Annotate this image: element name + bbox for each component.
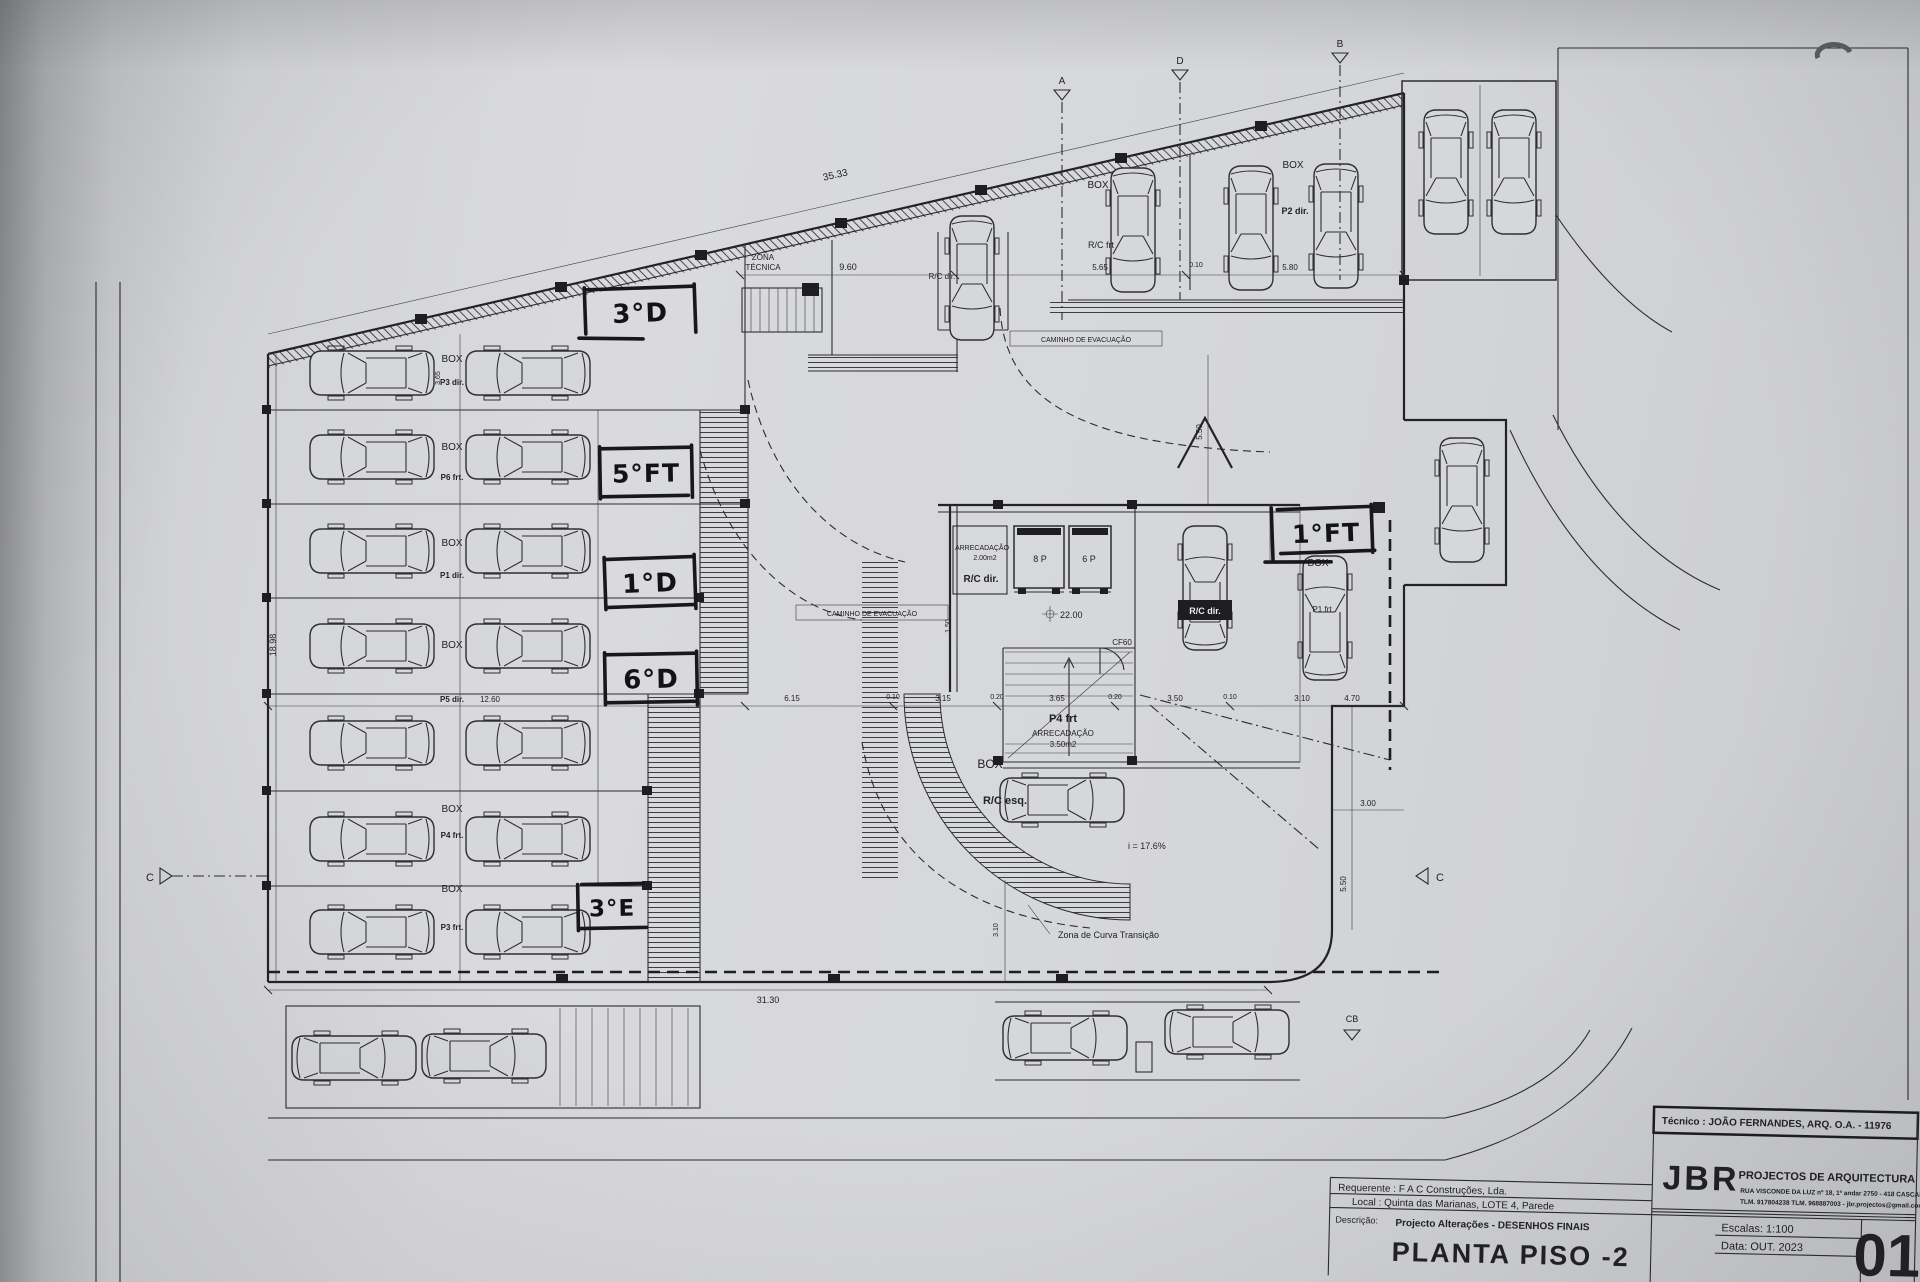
car-icon (310, 346, 434, 400)
handwritten-3e: 3°E (589, 896, 636, 923)
car-icon (310, 524, 434, 578)
car-icon (466, 905, 590, 959)
dim-18-98: 18.98 (268, 634, 278, 657)
car-icon (422, 1029, 546, 1083)
space-label-p4-frt: P4 frt (1049, 713, 1077, 725)
car-icon (310, 430, 434, 484)
firm-subtitle: PROJECTOS DE ARQUITECTURA (1738, 1170, 1915, 1186)
space-label-row6: P4 frt. (441, 831, 464, 840)
firm-contacts: TLM. 917804238 TLM. 968887003 - jbr.proj… (1740, 1199, 1920, 1210)
car-icon (466, 812, 590, 866)
box-label: BOX (441, 884, 462, 895)
box-label: BOX (977, 757, 1002, 771)
title-block-descricao-label: Descrição: (1335, 1215, 1378, 1226)
section-marker-c-right: C (1436, 872, 1444, 884)
title-block-requerente: Requerente : F A C Construções, Lda. (1338, 1183, 1507, 1198)
space-label-row3: P1 dir. (440, 571, 464, 580)
dim-5-80: 5.80 (1282, 263, 1298, 272)
level-22-00: 22.00 (1060, 610, 1083, 620)
dim-5-50-tr: 5.50 (1195, 424, 1204, 440)
floor-plan-drawing: ZONA TÉCNICA 9.60 5.65 0.10 5.80 35.33 1… (0, 0, 1920, 1282)
elevator-6p-label: 6 P (1082, 554, 1096, 564)
zona-tecnica-label2: TÉCNICA (745, 263, 781, 272)
dim-35-33: 35.33 (822, 167, 849, 183)
car-icon (310, 619, 434, 673)
zona-curva-label: Zona de Curva Transição (1058, 930, 1159, 940)
car-icon (292, 1031, 416, 1085)
space-label-rc-esq: R/C esq. (983, 795, 1027, 807)
space-label-rc-frt: R/C frt (1088, 240, 1114, 250)
car-icon (1178, 526, 1232, 650)
title-block-tecnico: Técnico : JOÃO FERNANDES, ARQ. O.A. - 11… (1662, 1114, 1892, 1132)
car-icon (1106, 168, 1160, 292)
car-icon (466, 346, 590, 400)
car-icon (1224, 166, 1278, 290)
slope-label: i = 17.6% (1128, 841, 1166, 851)
dim-mid-6: 3.50 (1167, 694, 1183, 703)
car-icon (466, 716, 590, 770)
dim-mid-5: 0.20 (1108, 694, 1122, 701)
handwritten-6d: 6°D (623, 665, 679, 696)
title-block-local: Local : Quinta das Marianas, LOTE 4, Par… (1352, 1197, 1555, 1213)
box-label: BOX (441, 538, 462, 549)
drawing-title: PLANTA PISO -2 (1391, 1237, 1630, 1272)
dim-mid-0: 6.15 (784, 694, 800, 703)
arrecadacao-area-200: 2.00m2 (973, 555, 996, 562)
car-icon (466, 430, 590, 484)
dim-31-30: 31.30 (757, 995, 780, 1005)
dim-1-50: 1.50 (945, 619, 952, 633)
dim-5-50-r: 5.50 (1339, 876, 1348, 892)
space-label-row7: P3 frt. (441, 923, 464, 932)
dim-mid-9: 4.70 (1344, 694, 1360, 703)
title-block-escala: Escalas: 1:100 (1721, 1222, 1793, 1236)
car-icon (1298, 556, 1352, 680)
arrecadacao-label2: ARRECADAÇÃO (1032, 729, 1094, 738)
paper-hole-icon (1817, 45, 1850, 58)
space-label-row2: P6 frt. (441, 473, 464, 482)
car-icon (466, 619, 590, 673)
car-icon (1419, 110, 1473, 234)
handwritten-5ft: 5°FT (612, 458, 681, 488)
dim-9-60: 9.60 (839, 262, 857, 272)
section-marker-d: D (1176, 56, 1183, 67)
space-label-rc-dir-top: R/C dir. (929, 272, 956, 281)
box-label: BOX (441, 804, 462, 815)
dim-12-60: 12.60 (480, 695, 501, 704)
handwritten-1ft: 1°FT (1292, 518, 1361, 549)
section-marker-cb: CB (1346, 1014, 1359, 1024)
car-icon (1309, 164, 1363, 288)
dim-0-10: 0.10 (1189, 262, 1203, 269)
box-label: BOX (441, 442, 462, 453)
dim-mid-3: 0.20 (990, 694, 1004, 701)
arrecadacao-area-350: 3.50m2 (1050, 740, 1077, 749)
elevator-8p-label: 8 P (1033, 554, 1047, 564)
zona-tecnica-label: ZONA (752, 253, 775, 262)
box-label: BOX (1282, 160, 1303, 171)
car-icon (1435, 438, 1489, 562)
box-label: BOX (1087, 180, 1108, 191)
dim-3-00: 3.00 (1360, 799, 1376, 808)
space-label-row4: P5 dir. (440, 695, 464, 704)
photo-architectural-drawing: ZONA TÉCNICA 9.60 5.65 0.10 5.80 35.33 1… (0, 0, 1920, 1282)
dim-mid-8: 3.10 (1294, 694, 1310, 703)
car-icon (1487, 110, 1541, 234)
firm-logo: JBR (1662, 1159, 1740, 1199)
section-marker-b: B (1337, 39, 1344, 50)
space-label-p2-dir: P2 dir. (1281, 206, 1308, 216)
caminho-evacuacao-label2: CAMINHO DE EVACUAÇÃO (827, 609, 918, 618)
dim-5-65: 5.65 (1092, 263, 1108, 272)
section-marker-a: A (1059, 76, 1066, 87)
car-icon (310, 905, 434, 959)
car-icon (310, 716, 434, 770)
dim-mid-2: 3.15 (935, 694, 951, 703)
space-label-p1-frt: P1 frt (1312, 605, 1332, 614)
caminho-evacuacao-label: CAMINHO DE EVACUAÇÃO (1041, 335, 1132, 344)
title-block: Técnico : JOÃO FERNANDES, ARQ. O.A. - 11… (1328, 1099, 1920, 1282)
dim-3-10-v: 3.10 (993, 923, 1000, 937)
space-label-row1: P3 dir. (440, 378, 464, 387)
box-label: BOX (441, 354, 462, 365)
title-block-descricao: Projecto Alterações - DESENHOS FINAIS (1395, 1218, 1590, 1233)
handwritten-3d: 3°D (612, 298, 669, 330)
space-label-rc-dir: R/C dir. (963, 574, 998, 585)
car-icon (1165, 1005, 1289, 1059)
firm-address: RUA VISCONDE DA LUZ nº 18, 1º andar 2750… (1740, 1188, 1920, 1199)
box-label: BOX (441, 640, 462, 651)
sheet-number: 01 (1853, 1221, 1920, 1282)
dim-3-65-v: 3.65 (435, 371, 442, 385)
dim-mid-4: 3.65 (1049, 694, 1065, 703)
car-icon (466, 524, 590, 578)
door-cf60-label: CF60 (1112, 638, 1132, 647)
space-label-rc-dir-inverse: R/C dir. (1189, 606, 1221, 616)
car-icon (310, 812, 434, 866)
dim-mid-1: 0.10 (886, 694, 900, 701)
car-icon (1003, 1011, 1127, 1065)
handwritten-1d: 1°D (622, 568, 679, 600)
arrecadacao-label: ARRECADAÇÃO (955, 543, 1010, 552)
section-marker-c-left: C (146, 872, 154, 884)
dim-mid-7: 0.10 (1223, 694, 1237, 701)
title-block-data: Data: OUT. 2023 (1721, 1240, 1803, 1254)
